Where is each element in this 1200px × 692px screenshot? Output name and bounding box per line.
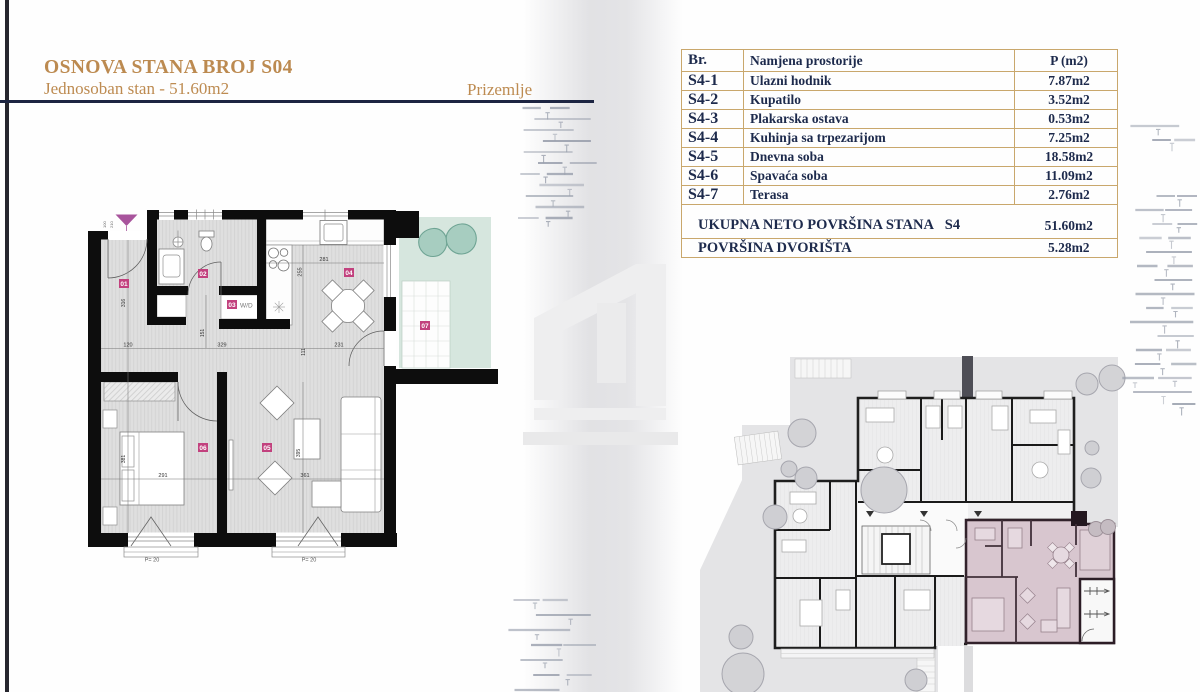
svg-text:255: 255 xyxy=(298,267,304,276)
svg-text:04: 04 xyxy=(345,270,353,277)
svg-text:210: 210 xyxy=(109,221,114,228)
svg-text:329: 329 xyxy=(217,343,226,349)
svg-text:05: 05 xyxy=(263,445,271,452)
svg-text:316: 316 xyxy=(121,299,127,308)
svg-text:P= 20: P= 20 xyxy=(302,558,317,564)
svg-text:03: 03 xyxy=(228,302,236,309)
svg-text:151: 151 xyxy=(200,329,206,338)
svg-text:361: 361 xyxy=(300,473,309,479)
svg-text:01: 01 xyxy=(120,281,128,288)
svg-text:100: 100 xyxy=(102,221,107,228)
svg-text:395: 395 xyxy=(296,449,302,458)
svg-text:07: 07 xyxy=(421,323,429,330)
svg-text:W/D: W/D xyxy=(240,303,253,310)
svg-text:381: 381 xyxy=(121,455,127,464)
svg-text:06: 06 xyxy=(199,445,207,452)
svg-text:120: 120 xyxy=(123,343,132,349)
svg-text:231: 231 xyxy=(334,343,343,349)
svg-text:281: 281 xyxy=(319,257,328,263)
svg-text:111: 111 xyxy=(301,348,307,356)
svg-text:02: 02 xyxy=(199,271,207,278)
svg-text:P= 20: P= 20 xyxy=(145,558,160,564)
svg-text:291: 291 xyxy=(158,473,167,479)
